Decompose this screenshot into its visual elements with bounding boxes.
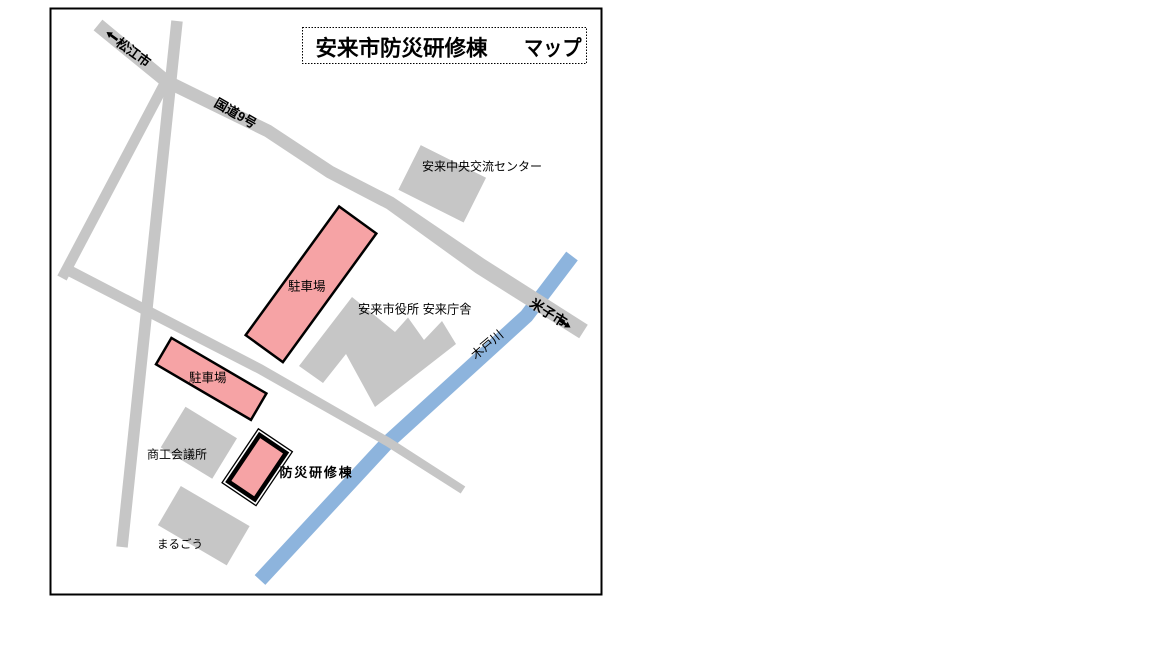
svg-text:安来市防災研修棟: 安来市防災研修棟 [316, 36, 488, 61]
svg-text:駐車場: 駐車場 [288, 279, 326, 294]
svg-text:安来中央交流センター: 安来中央交流センター [422, 159, 542, 174]
svg-text:マップ: マップ [524, 37, 582, 61]
svg-text:安来市役所 安来庁舎: 安来市役所 安来庁舎 [358, 302, 472, 317]
svg-text:まるごう: まるごう [157, 537, 203, 551]
svg-text:防災研修棟: 防災研修棟 [280, 465, 354, 480]
svg-text:商工会議所: 商工会議所 [147, 447, 207, 462]
svg-text:駐車場: 駐車場 [189, 370, 227, 385]
